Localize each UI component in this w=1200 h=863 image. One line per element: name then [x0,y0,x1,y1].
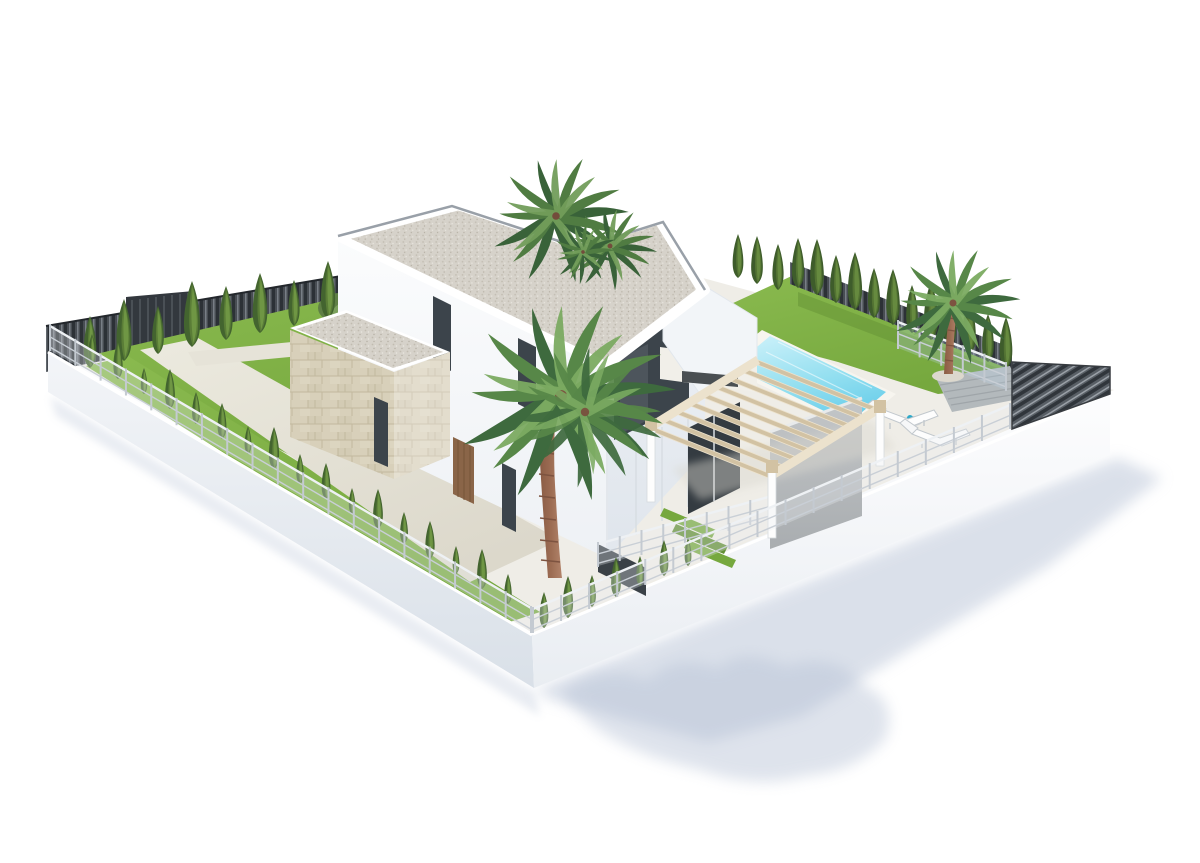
garage-slit-window [374,397,388,467]
render-stage [0,0,1200,863]
villa-render-canvas [0,0,1200,863]
slim-window-3 [502,463,516,532]
